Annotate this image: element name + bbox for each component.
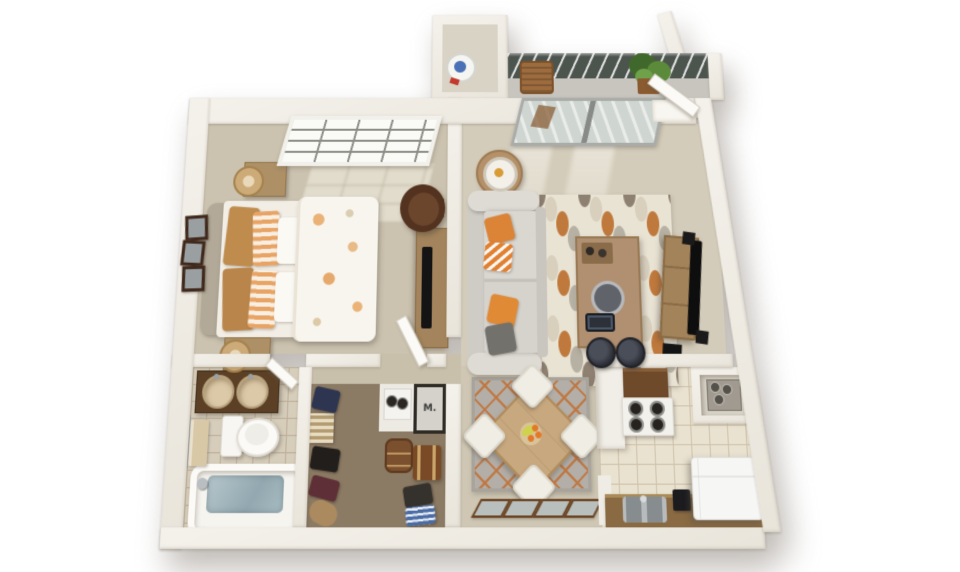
table-lamp-base	[494, 168, 503, 177]
hvac-coil	[713, 394, 724, 405]
gray-throw-pillow	[484, 322, 517, 356]
bathtub-water	[206, 475, 284, 513]
stove-burner	[629, 417, 645, 433]
glass-bowl	[591, 281, 626, 316]
balcony-chair	[520, 61, 554, 94]
striped-shirt	[405, 504, 436, 526]
stove-burner	[628, 401, 644, 417]
picture-frame	[185, 215, 208, 242]
interior-wall	[445, 384, 461, 527]
speaker	[695, 330, 709, 345]
overhead-cabinet	[623, 368, 669, 401]
floral-duvet	[292, 197, 379, 342]
exterior-wall	[160, 527, 766, 549]
towel	[188, 420, 209, 466]
decor-bottle	[598, 249, 607, 257]
storage-trunk	[413, 445, 442, 480]
hvac-coil	[710, 382, 721, 393]
sofa-backrest	[467, 195, 484, 371]
floorplan-render: M.	[0, 0, 960, 572]
armchair-seat	[408, 193, 439, 226]
chevron-throw-pillow	[483, 241, 514, 272]
basket-shelf	[309, 413, 334, 443]
bar-stool	[586, 337, 617, 368]
balcony-wall	[708, 53, 725, 100]
tablet	[585, 313, 615, 332]
decor-bottle	[586, 247, 595, 255]
bedroom-window	[277, 116, 442, 166]
interior-wall	[446, 98, 462, 337]
orange-fruit	[532, 425, 539, 432]
orange-fruit	[528, 435, 535, 442]
bar-stool	[615, 337, 646, 368]
mechanical-unit: M.	[413, 384, 446, 434]
stove-burner	[650, 417, 666, 433]
hanging-clothes	[309, 446, 341, 473]
water-heater-cap	[454, 61, 466, 73]
hvac-coil	[721, 384, 732, 395]
picture-frame	[182, 265, 206, 291]
orange-fruit	[535, 431, 542, 438]
kitchen-faucet	[640, 495, 647, 502]
interior-wall	[427, 354, 446, 367]
picture-frame	[180, 240, 206, 267]
speaker	[682, 231, 695, 245]
sofa-armrest	[468, 191, 540, 212]
interior-wall	[306, 354, 381, 367]
laundry-hamper	[384, 438, 413, 473]
kitchen-peninsula	[595, 367, 625, 449]
stove-burner	[649, 401, 665, 417]
coffee-maker	[672, 489, 690, 510]
bedroom-tv	[421, 247, 432, 329]
mechanical-label: M.	[423, 403, 436, 414]
apartment-plan: M.	[160, 98, 796, 549]
